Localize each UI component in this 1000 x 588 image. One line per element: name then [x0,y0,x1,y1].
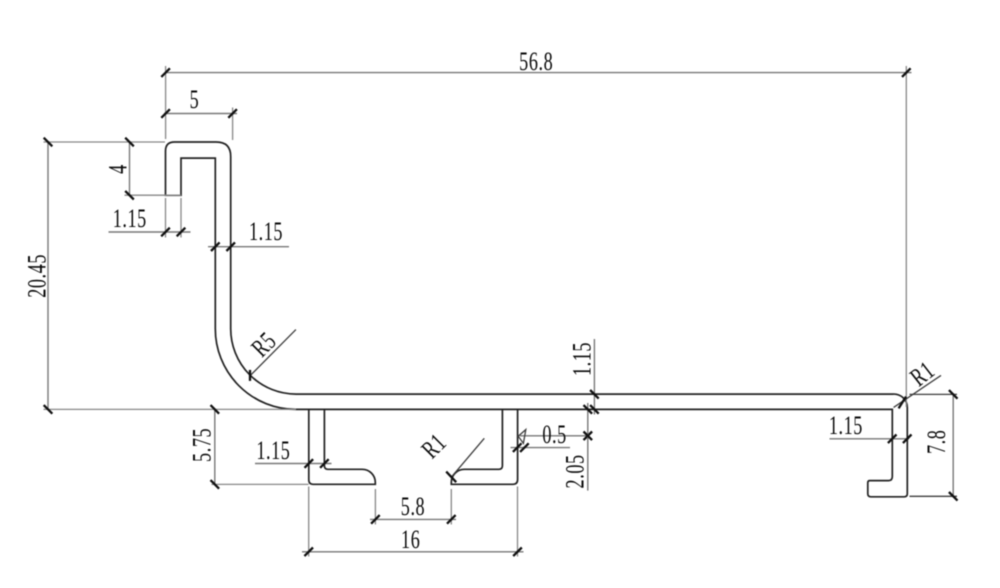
svg-text:1.15: 1.15 [113,204,147,233]
svg-text:1.15: 1.15 [829,411,863,440]
svg-text:R1: R1 [904,355,939,392]
svg-text:16: 16 [401,525,420,554]
svg-text:R1: R1 [416,428,452,464]
svg-text:1.15: 1.15 [249,217,283,246]
svg-text:R5: R5 [246,326,282,362]
svg-text:5.75: 5.75 [187,428,216,462]
svg-text:20.45: 20.45 [22,254,51,298]
svg-text:0.5: 0.5 [542,420,566,449]
svg-text:4: 4 [103,164,132,174]
svg-text:2.05: 2.05 [560,454,589,488]
svg-text:1.15: 1.15 [256,436,290,465]
svg-text:56.8: 56.8 [519,47,553,76]
svg-text:1.15: 1.15 [567,342,596,376]
svg-text:5: 5 [190,85,200,114]
svg-text:5.8: 5.8 [401,492,425,521]
svg-text:7.8: 7.8 [922,430,951,454]
